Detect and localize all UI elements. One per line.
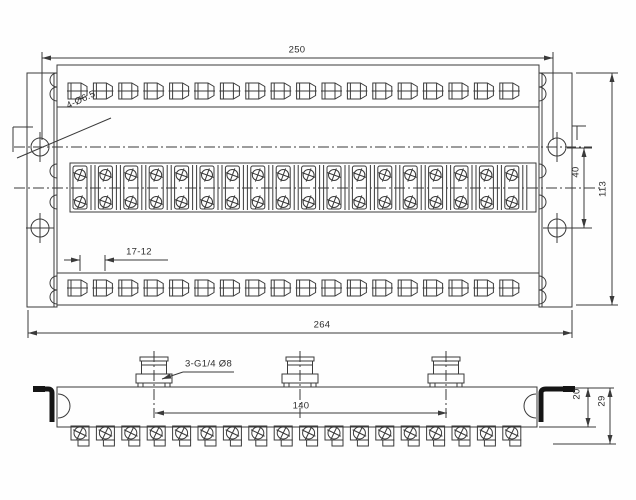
label-inlets: 3-G1/4 Ø8 (185, 359, 232, 370)
dim-overall-height-label: 113 (598, 181, 609, 197)
top-port-row (67, 83, 520, 99)
dim-inlet-span-label: 140 (293, 401, 310, 412)
dim-body-height-label: 20 (572, 388, 583, 399)
left-clamp-arc (58, 394, 70, 418)
top-view-outline (13, 65, 602, 307)
bottom-port-row (67, 280, 520, 296)
right-end-plate (539, 73, 572, 307)
dim-hole-span-label: 250 (289, 45, 306, 56)
front-port-row (71, 426, 521, 446)
drawing-canvas (0, 0, 636, 500)
right-clamp-arc (524, 394, 536, 418)
dim-overall-width-label: 264 (314, 320, 331, 331)
centerlines (14, 147, 602, 188)
dim-hole-spacing-label: 40 (571, 166, 582, 177)
dimension-arrows (28, 56, 615, 445)
dim-port-pitch-label: 17-12 (126, 247, 152, 258)
dim-front-overall-height-label: 29 (597, 395, 608, 406)
engineering-drawing-sheet: 250 264 113 40 17-12 4-Ø6.5 3-G1/4 Ø8 14… (0, 0, 636, 500)
